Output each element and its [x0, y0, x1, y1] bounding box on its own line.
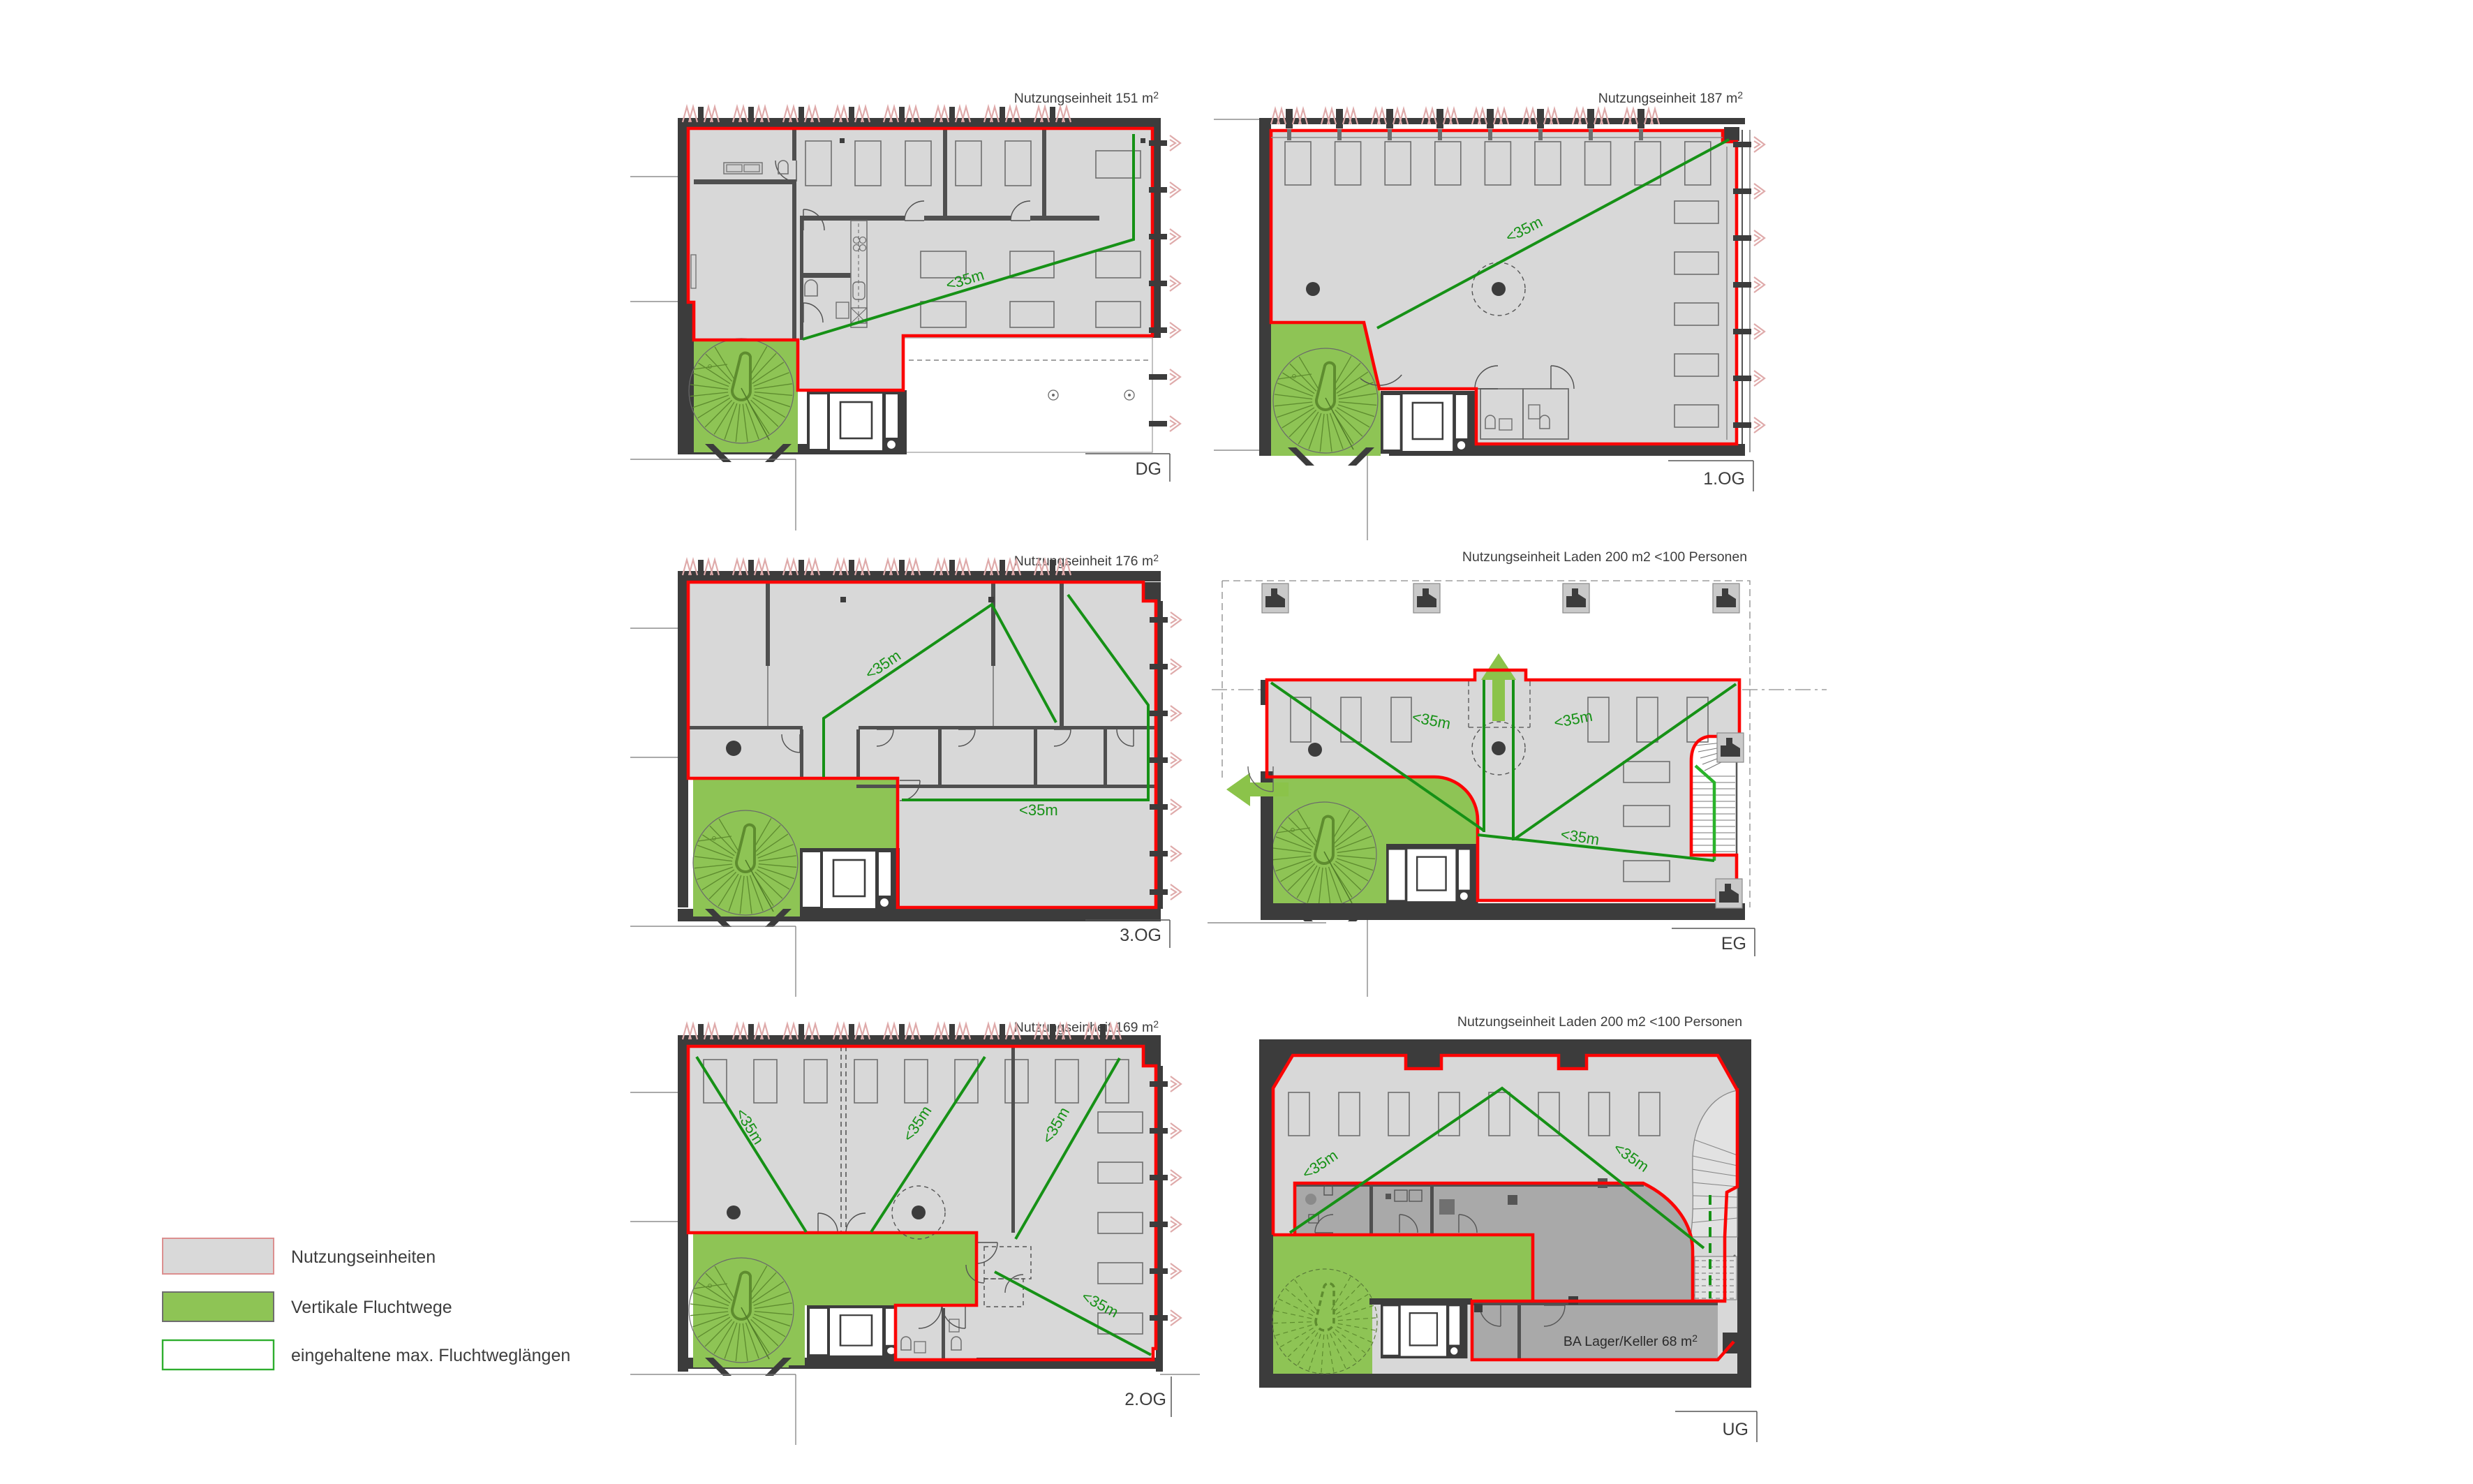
svg-text:eingehaltene max. Fluchtweglän: eingehaltene max. Fluchtweglängen — [291, 1346, 570, 1365]
svg-text:Vertikale Fluchtwege: Vertikale Fluchtwege — [291, 1298, 452, 1317]
svg-text:DG: DG — [1136, 459, 1162, 479]
svg-text:3.OG: 3.OG — [1120, 926, 1161, 945]
svg-text:1.OG: 1.OG — [1703, 469, 1745, 489]
svg-text:UG: UG — [1723, 1420, 1749, 1439]
svg-text:EG: EG — [1721, 934, 1746, 954]
svg-text:Nutzungseinheit 176 m2: Nutzungseinheit 176 m2 — [1014, 552, 1159, 569]
svg-text:Nutzungseinheit Laden 200 m2 <: Nutzungseinheit Laden 200 m2 <100 Person… — [1457, 1014, 1742, 1030]
svg-text:Nutzungseinheit 187 m2: Nutzungseinheit 187 m2 — [1598, 89, 1743, 106]
svg-text:Nutzungseinheiten: Nutzungseinheiten — [291, 1247, 436, 1267]
svg-text:Nutzungseinheit Laden 200 m2 <: Nutzungseinheit Laden 200 m2 <100 Person… — [1462, 549, 1747, 565]
svg-text:<35m: <35m — [1019, 801, 1058, 819]
svg-text:2.OG: 2.OG — [1124, 1390, 1166, 1409]
svg-text:BA Lager/Keller 68 m2: BA Lager/Keller 68 m2 — [1564, 1333, 1698, 1349]
svg-text:Nutzungseinheit 151 m2: Nutzungseinheit 151 m2 — [1014, 89, 1159, 106]
